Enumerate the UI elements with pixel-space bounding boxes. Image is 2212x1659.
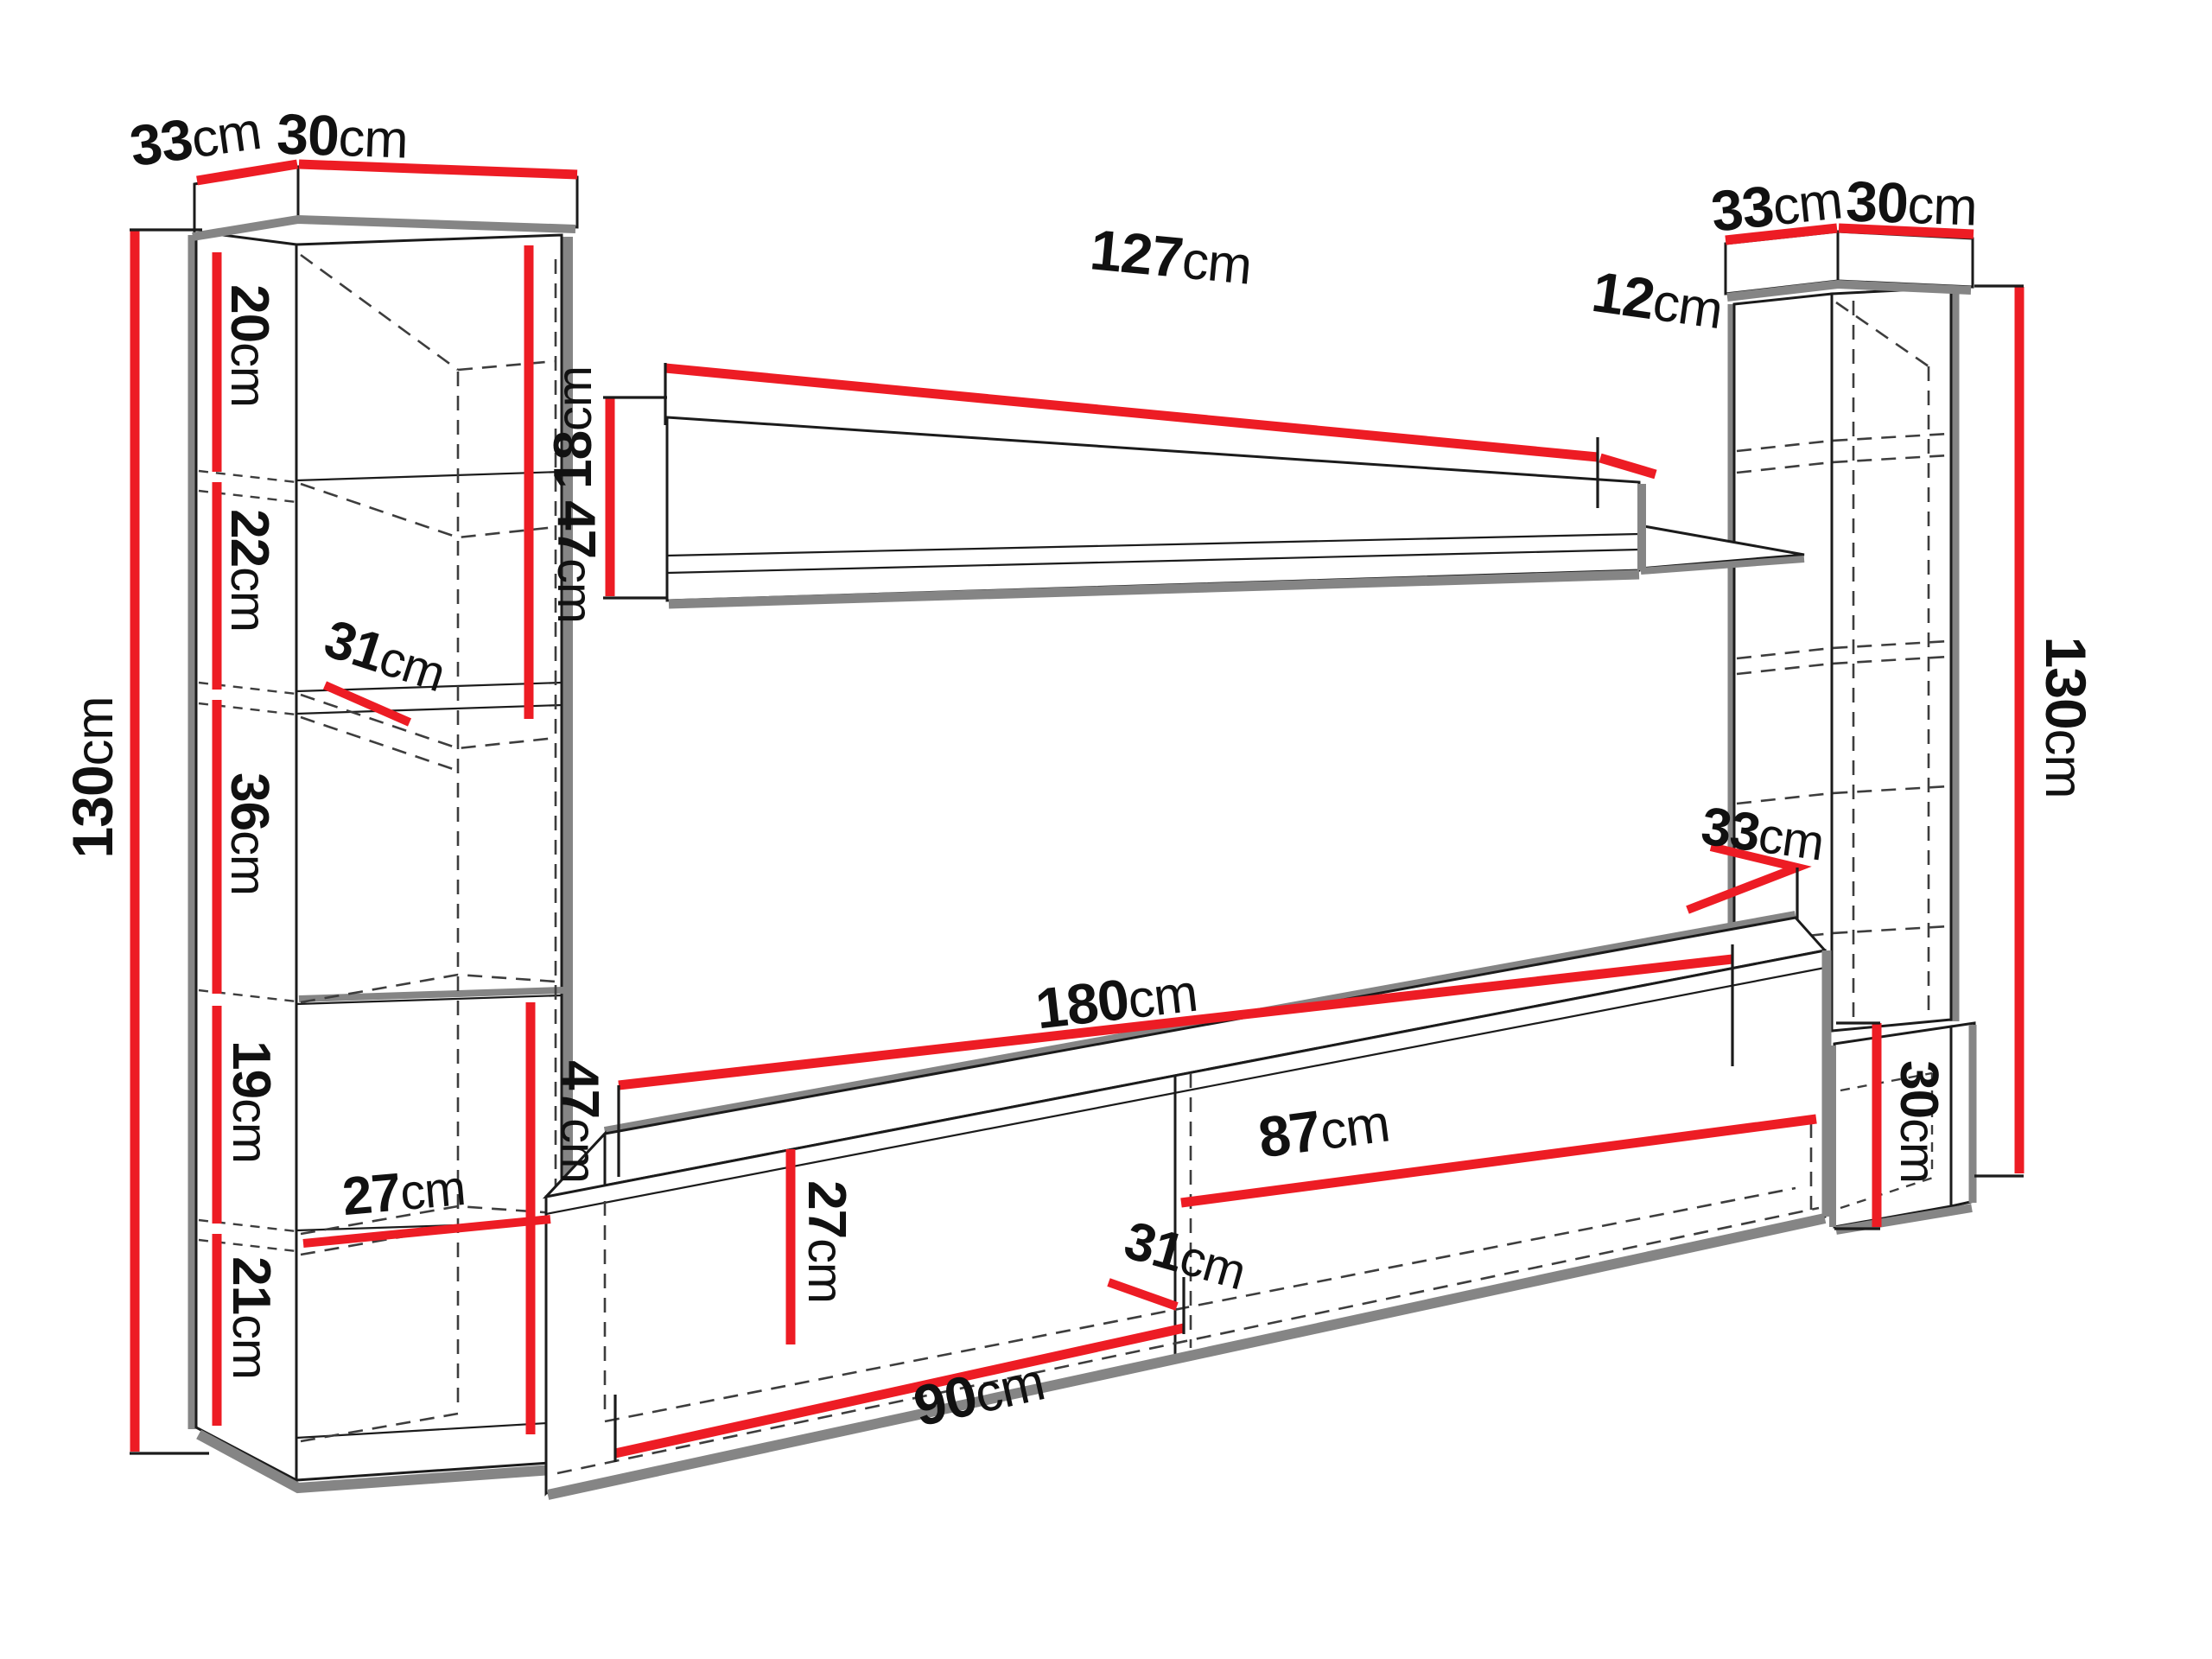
label-left-lower-unit-height: 47cm [550,1060,609,1183]
furniture-dimension-diagram: 33cm 30cm 130cm 20cm 22cm 36cm 19cm 21cm… [0,0,2212,1659]
label-left-top-depth: 33cm [126,97,264,178]
label-left-upper-unit-height: 47cm [546,500,606,623]
label-left-top-width: 30cm [276,101,409,169]
label-left-shelf-depth-27: 27cm [340,1157,467,1227]
label-left-section-2: 22cm [219,509,279,632]
diagram-canvas: 33cm 30cm 130cm 20cm 22cm 36cm 19cm 21cm… [0,0,2212,1659]
label-right-top-depth: 33cm [1708,166,1845,243]
label-left-section-1: 20cm [219,284,279,407]
right-cabinet-crown-right [1838,232,1973,287]
label-shelf-length: 127cm [1088,217,1255,296]
label-shelf-height: 18cm [543,366,603,489]
label-shelf-depth: 12cm [1588,259,1726,340]
label-right-base-height: 30cm [1889,1060,1948,1183]
label-left-section-4: 19cm [221,1040,281,1163]
label-left-section-5: 21cm [221,1256,281,1379]
left-cabinet-front-face [296,235,562,1480]
label-left-section-3: 36cm [219,772,279,895]
label-right-height: 130cm [2034,637,2098,798]
label-right-top-width: 30cm [1845,168,1978,237]
dim-line-shelf-depth [1600,458,1656,474]
wall-shelf [667,417,1804,604]
label-tv-inner-height: 27cm [797,1180,856,1303]
label-left-height: 130cm [60,697,124,859]
